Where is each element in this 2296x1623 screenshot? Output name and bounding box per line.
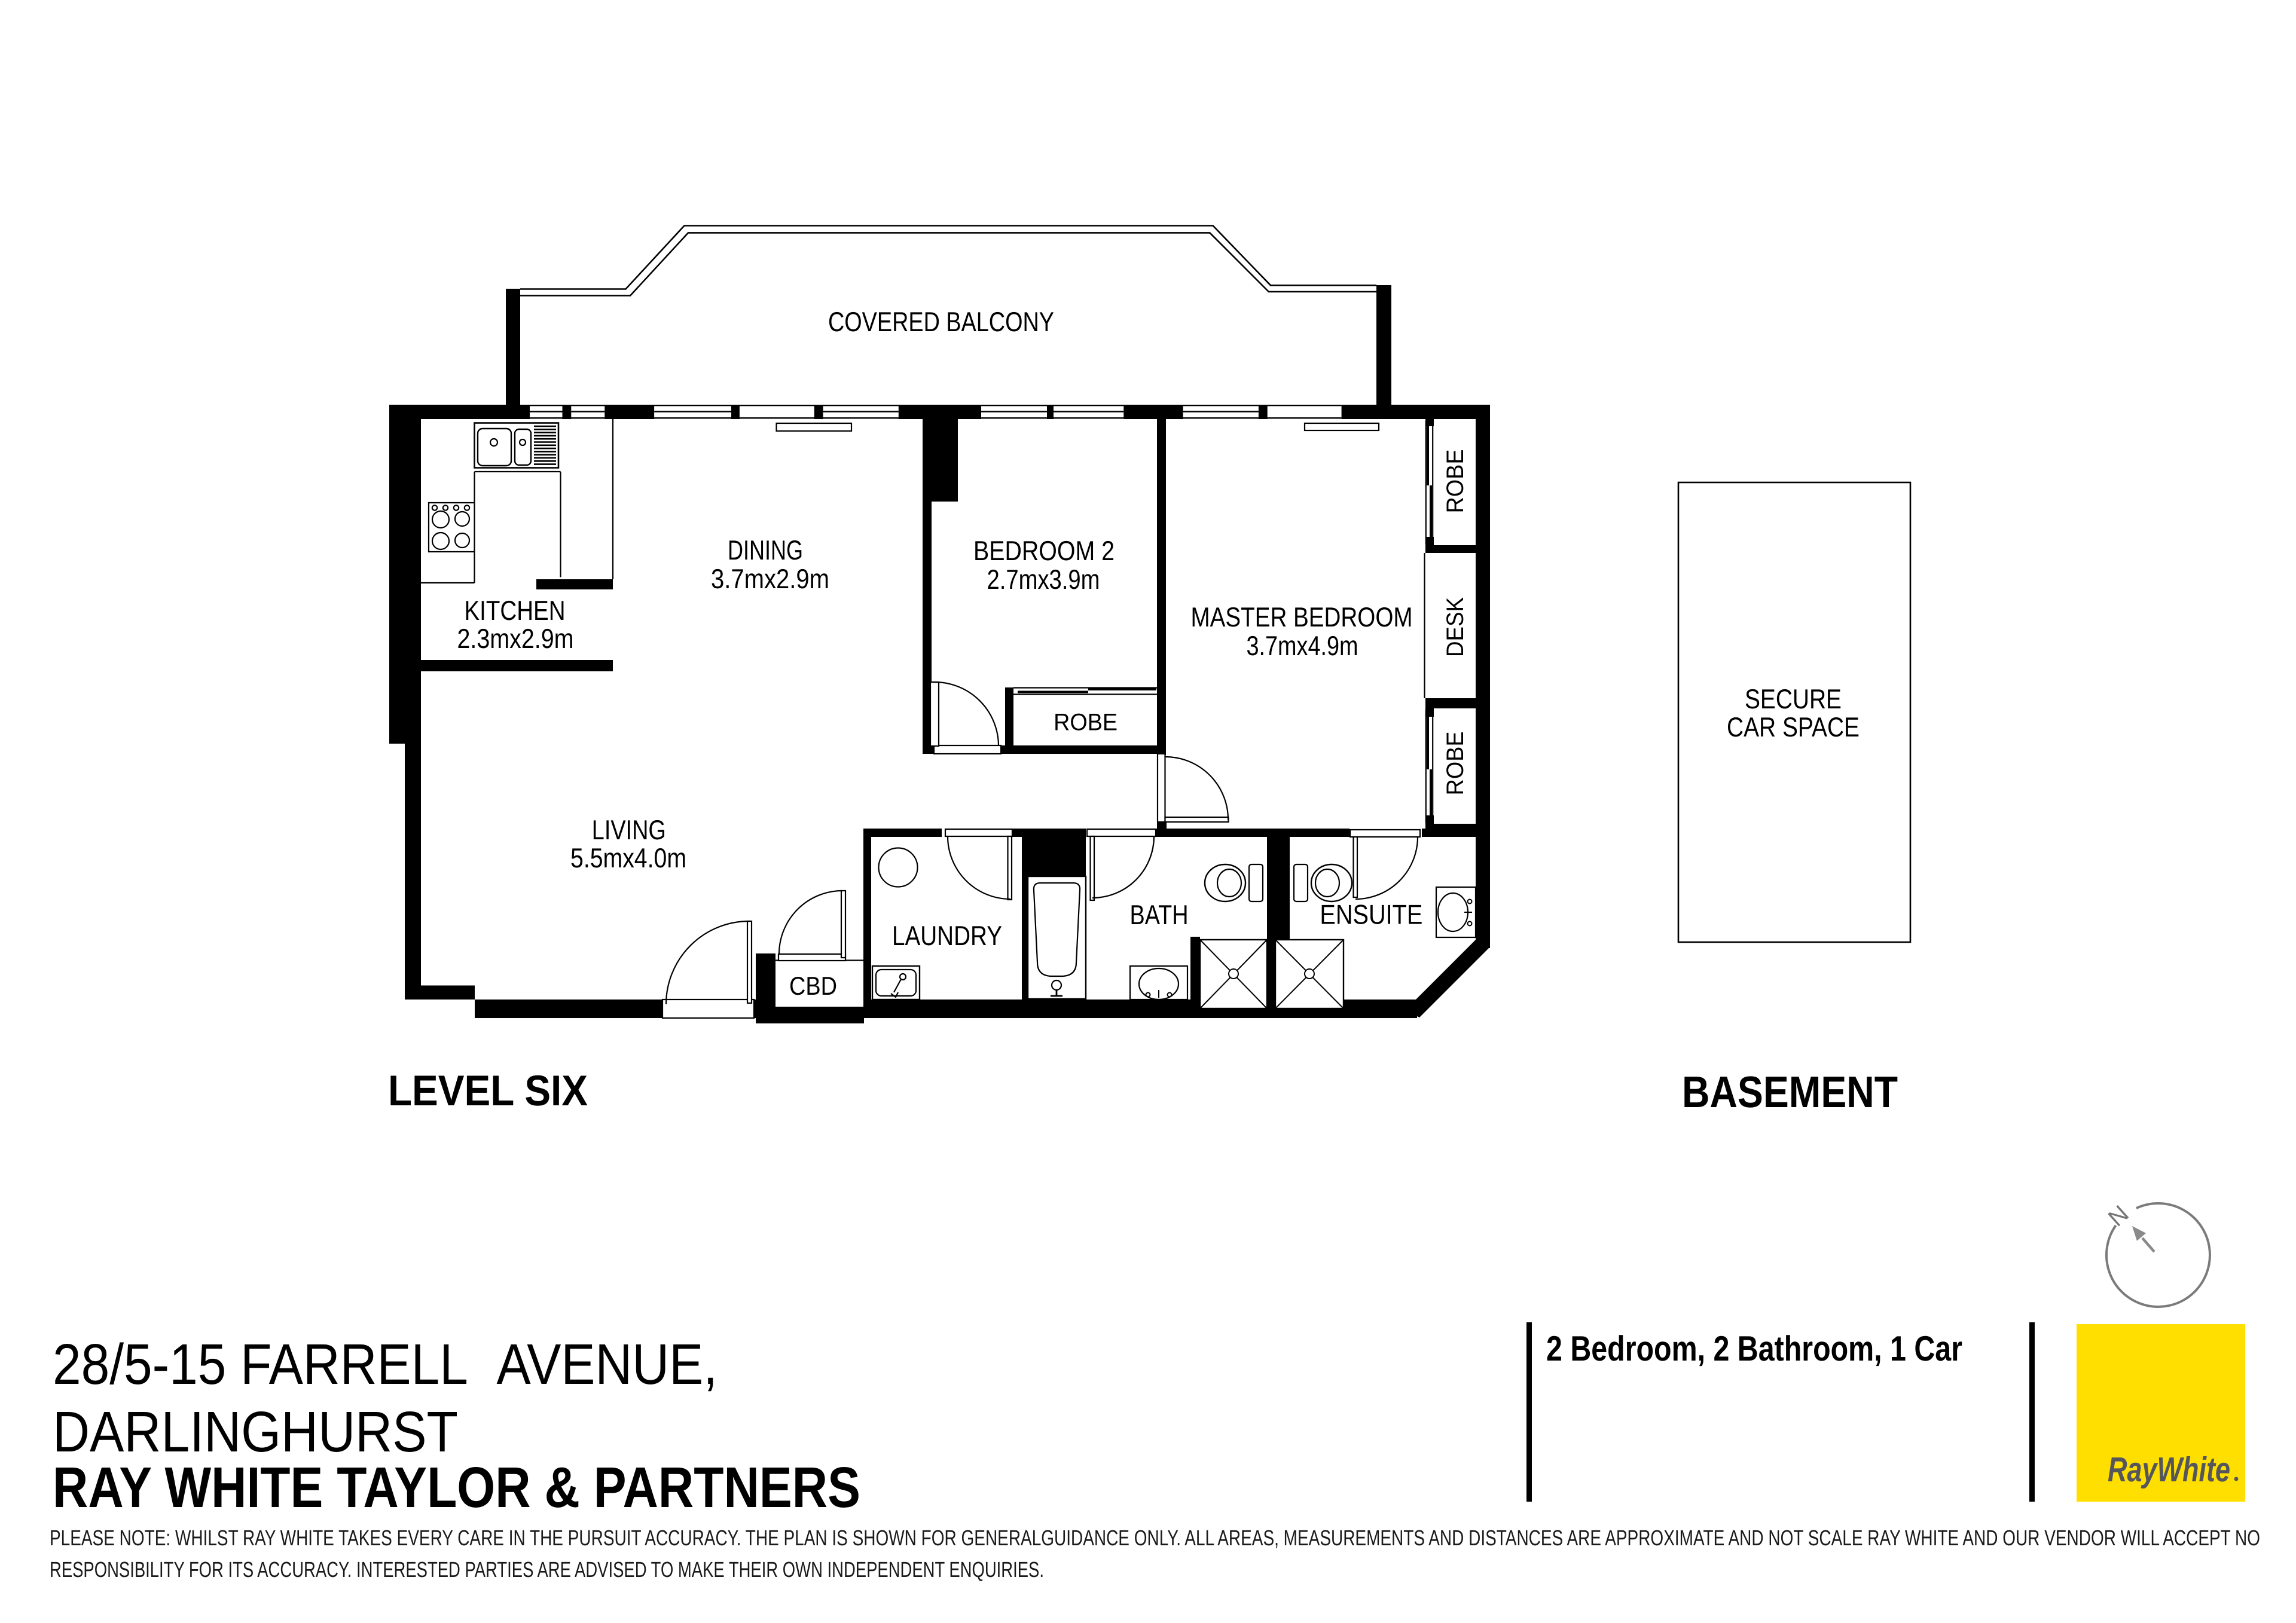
svg-text:28/5-15 FARRELL AVENUE,: 28/5-15 FARRELL AVENUE, [53, 1332, 717, 1396]
svg-text:BATH: BATH [1130, 899, 1189, 930]
svg-text:DARLINGHURST: DARLINGHURST [53, 1400, 458, 1464]
svg-text:CAR SPACE: CAR SPACE [1727, 711, 1860, 742]
svg-text:COVERED BALCONY: COVERED BALCONY [828, 306, 1054, 337]
svg-text:ENSUITE: ENSUITE [1320, 899, 1422, 930]
svg-text:2 Bedroom, 2 Bathroom, 1 Car: 2 Bedroom, 2 Bathroom, 1 Car [1546, 1329, 1962, 1368]
svg-text:CBD: CBD [789, 972, 837, 1001]
svg-text:ROBE: ROBE [1442, 450, 1468, 514]
svg-text:BASEMENT: BASEMENT [1682, 1067, 1898, 1117]
svg-text:RESPONSIBILITY FOR ITS ACCURAC: RESPONSIBILITY FOR ITS ACCURACY. INTERES… [50, 1557, 1044, 1582]
svg-text:ROBE: ROBE [1054, 710, 1118, 736]
svg-text:LIVING: LIVING [592, 814, 666, 845]
svg-text:RAY WHITE TAYLOR & PARTNERS: RAY WHITE TAYLOR & PARTNERS [53, 1456, 860, 1520]
svg-text:3.7mx2.9m: 3.7mx2.9m [711, 563, 829, 594]
svg-text:DINING: DINING [728, 534, 803, 566]
svg-text:5.5mx4.0m: 5.5mx4.0m [570, 842, 686, 873]
svg-text:LAUNDRY: LAUNDRY [892, 920, 1002, 951]
svg-text:PLEASE NOTE: WHILST RAY WHITE: PLEASE NOTE: WHILST RAY WHITE TAKES EVER… [50, 1526, 2260, 1550]
svg-text:3.7mx4.9m: 3.7mx4.9m [1247, 630, 1358, 661]
svg-text:BEDROOM 2: BEDROOM 2 [973, 535, 1115, 566]
svg-text:MASTER BEDROOM: MASTER BEDROOM [1191, 601, 1413, 632]
svg-text:ROBE: ROBE [1442, 732, 1468, 796]
svg-text:2.3mx2.9m: 2.3mx2.9m [457, 623, 574, 654]
svg-text:2.7mx3.9m: 2.7mx3.9m [987, 564, 1100, 595]
svg-text:LEVEL SIX: LEVEL SIX [388, 1067, 588, 1115]
svg-text:SECURE: SECURE [1745, 683, 1842, 714]
svg-text:DESK: DESK [1442, 597, 1468, 657]
svg-text:RayWhite: RayWhite [2108, 1450, 2230, 1489]
svg-text:KITCHEN: KITCHEN [465, 595, 566, 626]
